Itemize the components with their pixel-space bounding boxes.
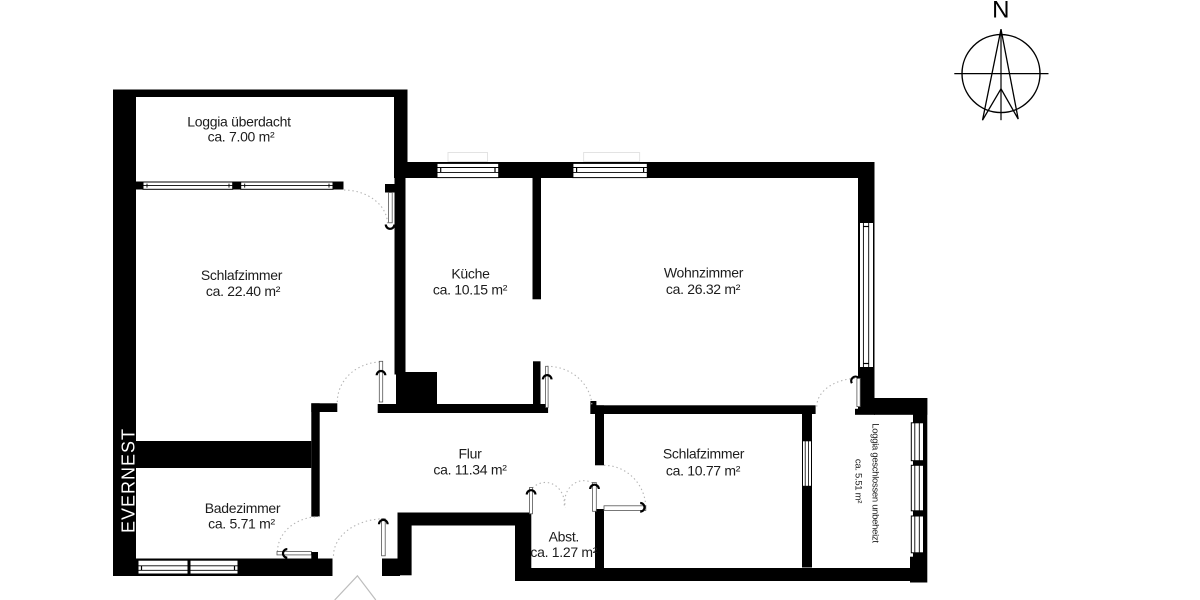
svg-text:ca. 26.32 m²: ca. 26.32 m² <box>666 281 741 297</box>
svg-text:Küche: Küche <box>451 266 490 282</box>
svg-text:ca. 10.15 m²: ca. 10.15 m² <box>433 282 508 298</box>
svg-text:Schlafzimmer: Schlafzimmer <box>201 267 283 283</box>
svg-text:ca. 10.77 m²: ca. 10.77 m² <box>666 463 741 479</box>
svg-text:Schlafzimmer: Schlafzimmer <box>663 446 745 462</box>
svg-text:ca. 1.27 m²: ca. 1.27 m² <box>530 544 597 560</box>
svg-text:N: N <box>992 0 1009 24</box>
svg-text:Loggia überdacht: Loggia überdacht <box>187 114 291 130</box>
svg-text:Badezimmer: Badezimmer <box>205 500 281 516</box>
svg-text:ca. 22.40 m²: ca. 22.40 m² <box>206 283 281 299</box>
svg-text:ca. 7.00 m²: ca. 7.00 m² <box>208 129 275 145</box>
svg-text:EVERNEST: EVERNEST <box>118 428 138 533</box>
svg-text:Wohnzimmer: Wohnzimmer <box>664 265 744 281</box>
svg-text:Abst.: Abst. <box>549 529 579 545</box>
svg-text:ca. 5.71 m²: ca. 5.71 m² <box>208 516 275 532</box>
svg-text:ca. 11.34 m²: ca. 11.34 m² <box>433 462 507 478</box>
svg-text:Flur: Flur <box>459 446 483 462</box>
svg-text:Loggia geschlossen unbeheizt: Loggia geschlossen unbeheizt <box>869 423 880 543</box>
svg-text:ca. 5.51 m²: ca. 5.51 m² <box>853 459 864 503</box>
